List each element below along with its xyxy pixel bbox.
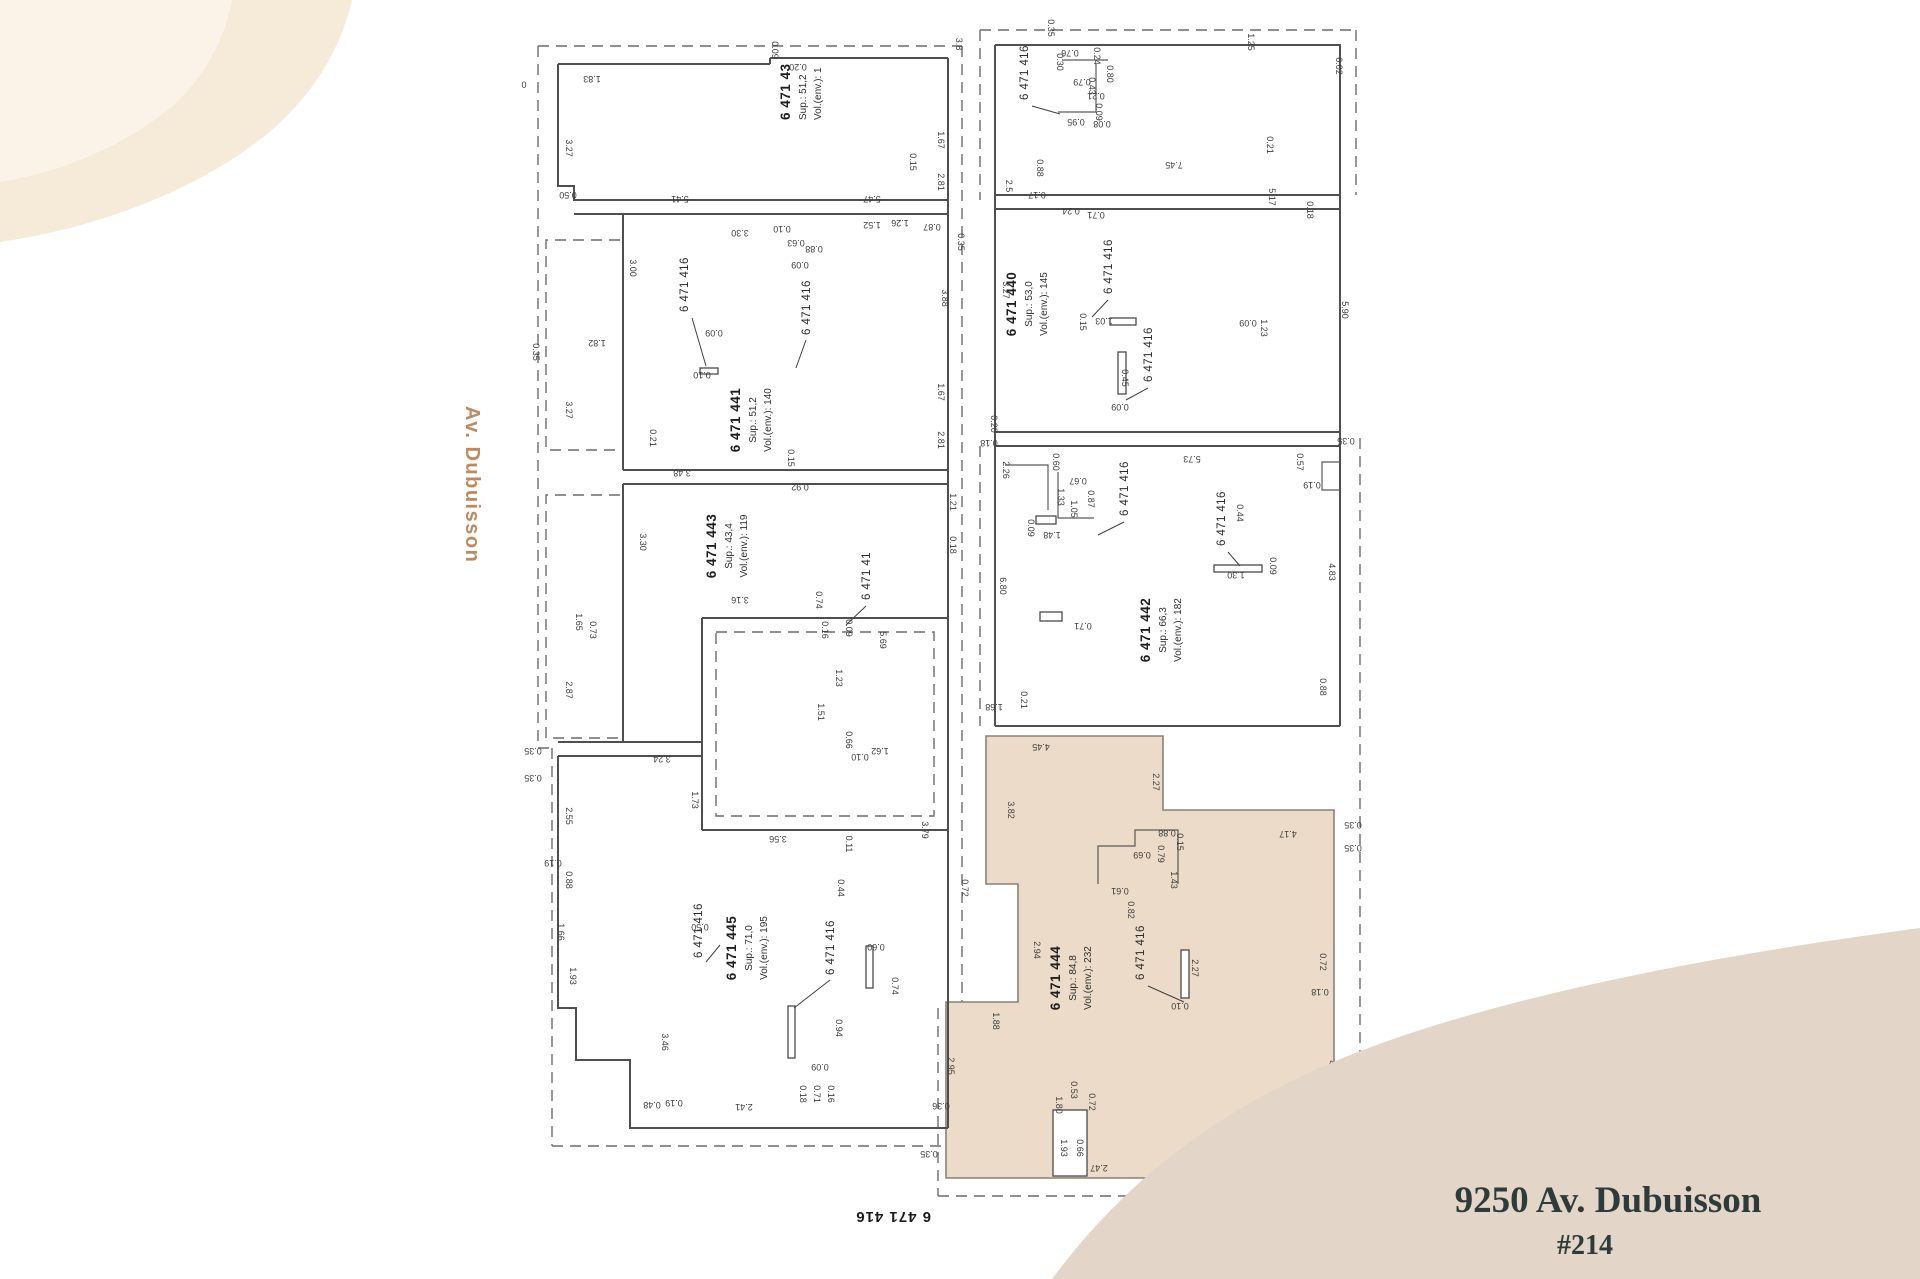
- unit-vol: Vol.(env.): 195: [759, 916, 770, 980]
- dimension-label: 0.50: [559, 190, 577, 200]
- dimension-label: 0.94: [834, 1019, 844, 1037]
- dimension-label: 0.09: [1239, 318, 1257, 328]
- dimension-label: 0.24: [1062, 206, 1080, 216]
- dimension-label: 3.30: [638, 533, 648, 551]
- unit-lot-number: 6 471 445: [724, 916, 739, 981]
- dimension-label: 0.61: [1111, 886, 1129, 896]
- dimension-label: 2.41: [735, 1102, 753, 1112]
- dimension-label: 2.94: [1032, 941, 1042, 959]
- dimension-label: 1.65: [574, 613, 584, 631]
- unit-label-6471444: 6 471 444 Sup.: 84,8 Vol.(env.): 232: [1048, 946, 1094, 1011]
- bottom-lot-label: 6 471 416: [855, 1208, 931, 1225]
- dimension-label: 0.18: [798, 1085, 808, 1103]
- unit-label-6471445: 6 471 445 Sup.: 71,0 Vol.(env.): 195: [724, 916, 770, 981]
- dimension-label: 1.80: [1054, 1096, 1064, 1114]
- wall-segment: [788, 1006, 795, 1058]
- balcony-dashed-441: [546, 240, 620, 450]
- reference-lot-label: 6 471 416: [1143, 327, 1155, 382]
- dimension-label: 2.95: [946, 1057, 956, 1075]
- dimension-label: 0.73: [588, 621, 598, 639]
- dimension-label: 0.48: [643, 1100, 661, 1110]
- dimension-label: 0.18: [1311, 987, 1329, 997]
- dimension-label: 0.87: [923, 222, 941, 232]
- dimension-label: 0.35: [956, 233, 966, 251]
- dimension-label: 0.08: [1093, 119, 1111, 129]
- dimension-label: 0.74: [814, 591, 824, 609]
- dimension-label: 0.35: [1337, 436, 1355, 446]
- dimension-label: 7.45: [1165, 160, 1183, 170]
- dimension-label: 0.74: [890, 977, 900, 995]
- dimension-label: 6.02: [1334, 57, 1344, 75]
- dimension-label: 1.33: [1056, 488, 1066, 506]
- dimension-label: 0.09: [770, 41, 780, 59]
- dimension-label: 2.87: [564, 681, 574, 699]
- dimension-label: 0.24: [1092, 47, 1102, 65]
- unit-lot-number: 6 471 442: [1138, 598, 1153, 663]
- unit-sup: Sup.: 43,4: [724, 523, 735, 569]
- dimension-label: 4.83: [1327, 563, 1337, 581]
- dimension-label: 3.8: [954, 38, 964, 51]
- reference-lot-label: 6 471 416: [1216, 491, 1228, 546]
- unit-vol: Vol.(env.): 140: [763, 388, 774, 452]
- dimension-label: 0.15: [1175, 833, 1185, 851]
- dimension-label: 0.72: [1087, 1093, 1097, 1111]
- dimension-label: 0: [521, 80, 526, 90]
- dimension-label: 0.19: [665, 1098, 683, 1108]
- dimension-label: 0.21: [1019, 691, 1029, 709]
- reference-lot-label: 6 471 416: [1135, 925, 1147, 980]
- dimension-label: 0.21: [648, 429, 658, 447]
- wall-segment: [1110, 318, 1136, 325]
- dimension-label: 2.47: [1090, 1163, 1108, 1173]
- dimension-label: 0.44: [1235, 504, 1245, 522]
- dimension-label: 0.60: [1051, 453, 1061, 471]
- dimension-label: 1.73: [690, 791, 700, 809]
- reference-lot-label: 6 471 416: [1019, 45, 1031, 100]
- dimension-label: 1.82: [588, 338, 606, 348]
- dimension-label: 3.30: [731, 228, 749, 238]
- unit-vol: Vol.(env.): 145: [1039, 272, 1050, 336]
- dimension-label: 0.44: [836, 879, 846, 897]
- dimension-label: 1.67: [936, 383, 946, 401]
- dimension-label: 0.19: [1303, 480, 1321, 490]
- dimension-label: 0.67: [1069, 476, 1087, 486]
- dimension-label: 2.81: [936, 173, 946, 191]
- reference-lot-label: 6 471 416: [679, 257, 691, 312]
- dimension-label: 0.18: [980, 438, 998, 448]
- dimension-label: 0.21: [1087, 91, 1105, 101]
- dimension-label: 1.93: [568, 967, 578, 985]
- dimension-label: 0.35: [920, 1149, 938, 1159]
- dimension-label: 0.87: [1086, 490, 1096, 508]
- dimension-label: 1.93: [1059, 1139, 1069, 1157]
- wall-segment: [1036, 516, 1056, 524]
- dimension-label: 4.17: [1279, 829, 1297, 839]
- reference-lot-label: 6 471 416: [693, 903, 705, 958]
- dimension-label: 0.09: [1026, 519, 1036, 537]
- wall-segment: [1040, 612, 1062, 621]
- unit-sup: Sup.: 53,0: [1024, 281, 1035, 327]
- dimension-label: 2.81: [936, 431, 946, 449]
- dimension-label: 0.92: [791, 482, 809, 492]
- corridor-dashed: [716, 632, 934, 816]
- dimension-label: 0.72: [960, 879, 970, 897]
- dimension-label: 1.21: [948, 493, 958, 511]
- dimension-label: 0.82: [1126, 901, 1136, 919]
- dimension-label: 0.88: [1035, 159, 1045, 177]
- unit-sup: Sup.: 71,0: [744, 925, 755, 971]
- dimension-label: 1.26: [891, 218, 909, 228]
- dimension-label: 2.26: [1001, 461, 1011, 479]
- dimension-label: 0.09: [844, 619, 854, 637]
- unit-sup: Sup.: 66,3: [1158, 607, 1169, 653]
- reference-lot-label: 6 471 416: [1103, 239, 1115, 294]
- dimension-label: 0.60: [867, 942, 885, 952]
- dimension-label: 6.80: [998, 577, 1008, 595]
- dimension-label: 0.09: [1111, 402, 1129, 412]
- dimension-label: 0.95: [1067, 117, 1085, 127]
- dimension-label: 3.27: [1001, 281, 1011, 299]
- dimension-label: 1.03: [1095, 316, 1113, 326]
- dimension-label: 0.15: [908, 153, 918, 171]
- reference-lot-label: 6 471 416: [1119, 461, 1131, 516]
- dimension-label: 3.27: [564, 401, 574, 419]
- unit-vol: Vol.(env.): 1: [813, 67, 824, 120]
- dimension-label: 0.88: [564, 871, 574, 889]
- dimension-label: 0.88: [1318, 678, 1328, 696]
- dimension-label: 0.79: [1156, 845, 1166, 863]
- dimension-label: 5.47: [863, 194, 881, 204]
- dimension-label: 0.57: [1295, 453, 1305, 471]
- dimension-label: 4.45: [1032, 742, 1050, 752]
- dimension-label: 0.88: [1158, 828, 1176, 838]
- address-unit-number: #214: [1557, 1230, 1613, 1261]
- unit-lot-number: 6 471 444: [1048, 946, 1063, 1011]
- dimension-label: 0.35: [524, 746, 542, 756]
- dimension-label: 0.15: [786, 449, 796, 467]
- reference-lot-label: 6 471 416: [801, 280, 813, 335]
- dimension-label: 0.63: [787, 238, 805, 248]
- unit-lot-number: 6 471 441: [728, 388, 743, 453]
- dimension-label: 0.15: [1078, 313, 1088, 331]
- dimension-label: 3.56: [769, 834, 787, 844]
- dimension-label: 0.20: [789, 62, 807, 72]
- reference-lot-label: 6 471 416: [825, 920, 837, 975]
- dimension-label: 0.69: [1133, 850, 1151, 860]
- dimension-label: 0.10: [773, 224, 791, 234]
- unit-vol: Vol.(env.): 119: [739, 514, 750, 577]
- dimension-label: 0.18: [948, 536, 958, 554]
- reference-lot-label: 6 471 41: [861, 552, 873, 600]
- dimension-label: 1.52: [863, 220, 881, 230]
- unit-vol: Vol.(env.): 182: [1173, 598, 1184, 662]
- unit-label-6471443: 6 471 443 Sup.: 43,4 Vol.(env.): 119: [704, 514, 750, 579]
- dimension-label: 0.45: [1120, 369, 1130, 387]
- address-line: 9250 Av. Dubuisson: [1455, 1180, 1762, 1221]
- wall-segment: [1181, 950, 1189, 998]
- dimension-label: 0.71: [1074, 621, 1092, 631]
- unit-label-6471442: 6 471 442 Sup.: 66,3 Vol.(env.): 182: [1138, 598, 1184, 663]
- dimension-label: 3.24: [653, 754, 671, 764]
- dimension-label: 0.36: [932, 1101, 950, 1111]
- unit-sup: Sup.: 51,2: [748, 397, 759, 443]
- dimension-label: 0.66: [844, 731, 854, 749]
- dimension-label: 0.88: [805, 244, 823, 254]
- dimension-label: 5.41: [671, 194, 689, 204]
- street-label: Av. Dubuisson: [461, 406, 483, 563]
- dimension-label: 0.16: [826, 1085, 836, 1103]
- dimension-label: 1.51: [816, 703, 826, 721]
- dimension-label: 0.35: [531, 343, 541, 361]
- dimension-label: 1.67: [936, 131, 946, 149]
- dimension-label: 0.53: [1069, 1081, 1079, 1099]
- unit-vol: Vol.(env.): 232: [1083, 946, 1094, 1010]
- dimension-label: 0.71: [1087, 210, 1105, 220]
- unit-sup: Sup.: 51,2: [798, 74, 809, 120]
- slide-canvas: 6 471 43 Sup.: 51,2 Vol.(env.): 1 6 471 …: [0, 0, 1920, 1279]
- dimension-label: 0.10: [851, 752, 869, 762]
- dimension-label: 0.16: [820, 621, 830, 639]
- dimension-label: 0.66: [1075, 1139, 1085, 1157]
- dimension-label: 3.16: [731, 595, 749, 605]
- dimension-label: 3.88: [940, 289, 950, 307]
- dimension-label: 1.83: [583, 74, 601, 84]
- dimension-label: 0.09: [705, 328, 723, 338]
- dimension-label: 1.23: [834, 669, 844, 687]
- dimension-label: 0.10: [1171, 1001, 1189, 1011]
- dimension-label: 1.23: [1259, 319, 1269, 337]
- dimension-label: 1.68: [985, 702, 1003, 712]
- dimension-label: 1.66: [556, 923, 566, 941]
- dimension-label: 3.79: [920, 821, 930, 839]
- dimension-label: 5.17: [1267, 188, 1277, 206]
- dimension-label: 2.27: [1151, 773, 1161, 791]
- dimension-label: 1.62: [871, 746, 889, 756]
- dimension-label: 1.05: [1069, 500, 1079, 518]
- dimension-label: 2.27: [1190, 959, 1200, 977]
- dimension-label: 0.09: [1094, 103, 1104, 121]
- dimension-label: 0.09: [811, 1062, 829, 1072]
- dimension-label: 0.71: [812, 1085, 822, 1103]
- dimension-label: 0.09: [1268, 557, 1278, 575]
- dimension-label: 3.27: [564, 139, 574, 157]
- dimension-label: 0.80: [1105, 65, 1115, 83]
- dimension-label: 3.00: [628, 259, 638, 277]
- dimension-label: 5.90: [1340, 301, 1350, 319]
- dimension-label: 0.72: [1318, 953, 1328, 971]
- dimension-label: 0.20: [989, 415, 999, 433]
- dimension-label: 1.48: [1043, 530, 1061, 540]
- dimension-label: 3.48: [673, 468, 691, 478]
- site-plan-svg: 6 471 43 Sup.: 51,2 Vol.(env.): 1 6 471 …: [0, 0, 1920, 1279]
- dimension-label: 2.5: [1004, 180, 1014, 193]
- dimension-label: 5.73: [1183, 454, 1201, 464]
- dimension-label: 0.21: [1265, 136, 1275, 154]
- unit-lot-number: 6 471 443: [704, 514, 719, 579]
- dimension-label: 0.35: [524, 773, 542, 783]
- dimension-label: 1.88: [991, 1012, 1001, 1030]
- dimension-label: 0.18: [1305, 201, 1315, 219]
- dimension-label: 0.17: [1028, 190, 1046, 200]
- dimension-label: 0.35: [1344, 843, 1362, 853]
- dimension-label: 0.35: [1344, 820, 1362, 830]
- dimension-label: 0.11: [844, 836, 854, 853]
- dimension-label: 1.25: [1246, 33, 1256, 51]
- dimension-label: 0.09: [791, 260, 809, 270]
- dimension-label: 1.30: [1227, 570, 1245, 580]
- dimension-label: 3.46: [660, 1033, 670, 1051]
- dimension-label: 0.35: [1046, 19, 1056, 37]
- dimension-label: 2.55: [564, 807, 574, 825]
- dimension-label: 5.69: [878, 631, 888, 649]
- dimension-label: 0.30: [1055, 53, 1065, 71]
- dimension-label: 3.82: [1006, 801, 1016, 819]
- dimension-label: 1.43: [1169, 871, 1179, 889]
- dimension-label: 0.10: [693, 370, 711, 380]
- dimension-label: 0.19: [544, 858, 562, 868]
- unit-sup: Sup.: 84,8: [1068, 955, 1079, 1001]
- unit-label-6471441: 6 471 441 Sup.: 51,2 Vol.(env.): 140: [728, 388, 774, 453]
